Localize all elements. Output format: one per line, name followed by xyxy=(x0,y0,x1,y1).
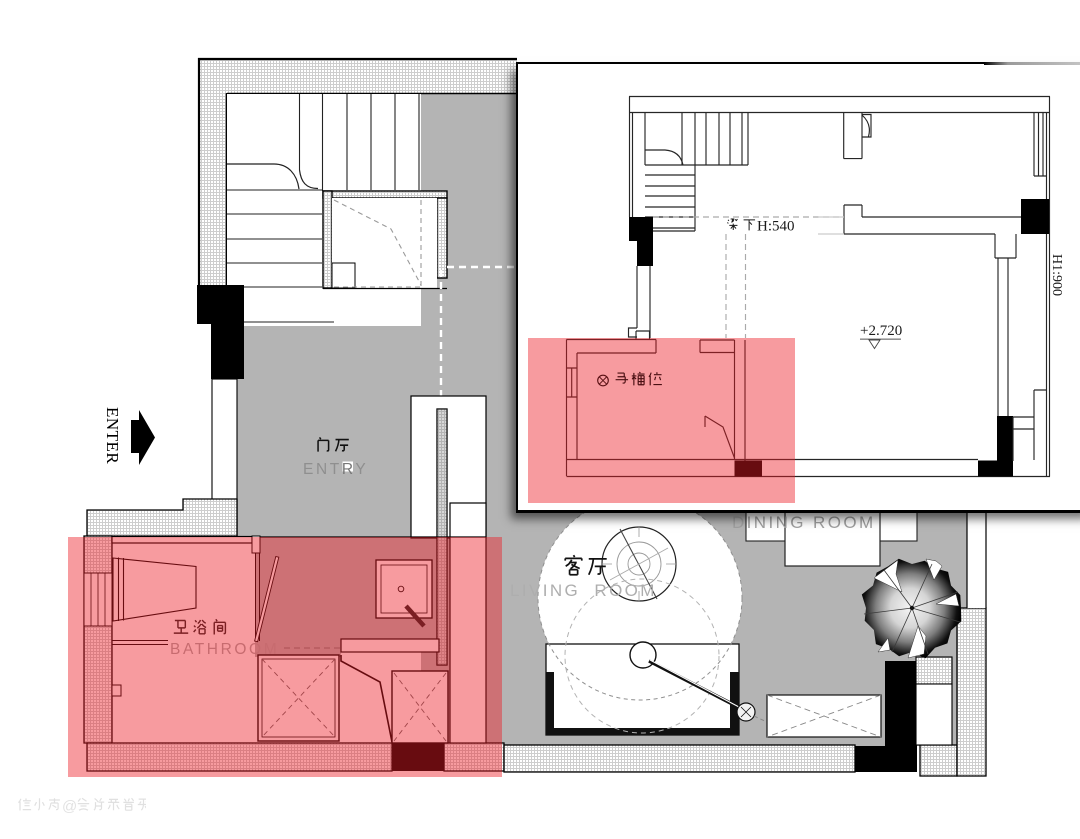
svg-text:@: @ xyxy=(62,798,77,815)
svg-text:DINING ROOM: DINING ROOM xyxy=(732,513,876,532)
svg-text:ENTER: ENTER xyxy=(103,407,122,464)
svg-text:ENTRY: ENTRY xyxy=(303,461,368,478)
svg-text:+2.720: +2.720 xyxy=(860,323,902,339)
svg-text:H:540: H:540 xyxy=(757,219,795,235)
svg-text:LIVING ROOM: LIVING ROOM xyxy=(510,581,657,600)
svg-text:H1:900: H1:900 xyxy=(1049,254,1064,296)
